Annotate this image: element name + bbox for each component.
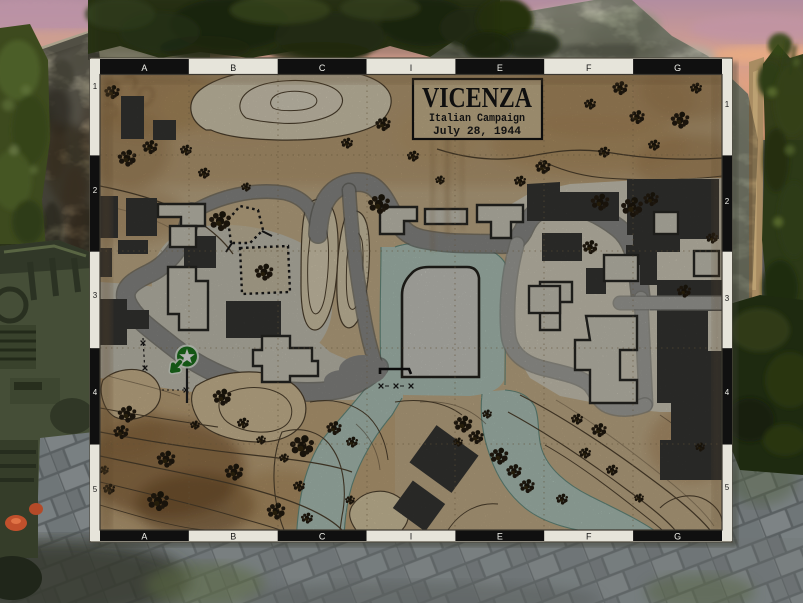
svg-text:1: 1 [725, 100, 730, 109]
svg-text:1: 1 [93, 82, 98, 91]
svg-text:F: F [586, 63, 592, 73]
svg-text:G: G [674, 63, 681, 73]
svg-text:2: 2 [93, 186, 98, 195]
svg-text:I: I [410, 63, 413, 73]
svg-text:3: 3 [93, 291, 98, 300]
svg-text:4: 4 [725, 388, 730, 397]
svg-text:A: A [141, 63, 147, 73]
svg-text:E: E [497, 63, 503, 73]
svg-text:B: B [230, 532, 236, 542]
svg-text:2: 2 [725, 197, 730, 206]
svg-text:5: 5 [93, 485, 98, 494]
svg-text:F: F [586, 532, 592, 542]
svg-text:G: G [674, 532, 681, 542]
svg-text:C: C [319, 63, 326, 73]
svg-text:C: C [319, 532, 326, 542]
svg-text:3: 3 [725, 294, 730, 303]
svg-text:B: B [230, 63, 236, 73]
svg-text:A: A [141, 532, 147, 542]
svg-text:5: 5 [725, 483, 730, 492]
svg-text:E: E [497, 532, 503, 542]
svg-text:I: I [410, 532, 413, 542]
svg-text:4: 4 [93, 388, 98, 397]
